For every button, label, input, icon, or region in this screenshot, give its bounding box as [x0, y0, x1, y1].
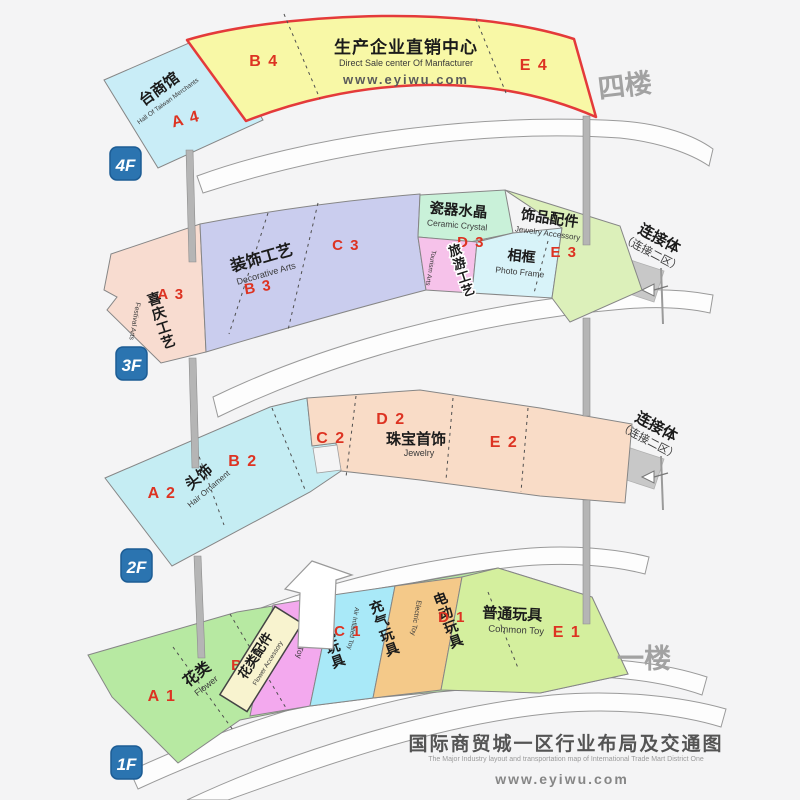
badge-2f: 2F [121, 549, 152, 582]
direct-sale-title-en: Direct Sale center Of Manfacturer [339, 58, 473, 68]
code-d1: D 1 [438, 609, 466, 626]
badge-1f-label: 1F [117, 755, 137, 774]
badge-3f: 3F [116, 347, 147, 380]
common-toy-name: 普通玩具 [482, 603, 543, 624]
column-right-lower [583, 500, 590, 624]
floor-map-canvas: 台商馆 Hall Of Taiwan Merchants A 4 B 4 生产企… [0, 0, 800, 800]
footer: 国际商贸城一区行业布局及交通图 The Major Industry layou… [408, 732, 723, 787]
photo-frame-name: 相框 [507, 247, 537, 266]
code-a2: A 2 [148, 485, 177, 502]
badge-1f: 1F [111, 746, 142, 779]
map-title: 国际商贸城一区行业布局及交通图 [408, 732, 723, 755]
road-arc-below-4f [197, 119, 713, 193]
direct-sale-title: 生产企业直销中心 [334, 37, 478, 57]
side-label-1f: 一楼 [617, 644, 671, 674]
direct-sale-website: www.eyiwu.com [342, 72, 469, 87]
badge-4f: 4F [110, 147, 141, 180]
code-e3: E 3 [550, 244, 577, 261]
code-d2: D 2 [376, 411, 405, 428]
code-b4: B 4 [249, 53, 278, 70]
code-b2: B 2 [228, 453, 257, 470]
jewelry-name: 珠宝首饰 [386, 430, 446, 448]
code-a1: A 1 [148, 688, 177, 705]
side-label-4f: 四楼 [596, 68, 653, 104]
column-right-upper [583, 116, 590, 245]
code-e1: E 1 [553, 624, 582, 641]
code-e4: E 4 [520, 57, 549, 74]
code-c2: C 2 [316, 430, 345, 447]
column-right-middle [583, 318, 590, 416]
map-subtitle: The Major Industry layout and transporta… [428, 756, 704, 763]
floor-2f: A 2 头饰 Hair Ornament B 2 C 2 D 2 珠宝首饰 Je… [105, 390, 632, 566]
trade-mart-floor-map: 台商馆 Hall Of Taiwan Merchants A 4 B 4 生产企… [0, 0, 800, 800]
notch [313, 445, 341, 473]
jewelry-name-en: Jewelry [404, 448, 435, 458]
map-website: www.eyiwu.com [494, 771, 629, 787]
badge-2f-label: 2F [126, 558, 147, 577]
code-c3: C 3 [332, 237, 360, 254]
badge-4f-label: 4F [115, 156, 136, 175]
code-e2: E 2 [490, 434, 519, 451]
badge-3f-label: 3F [122, 356, 142, 375]
